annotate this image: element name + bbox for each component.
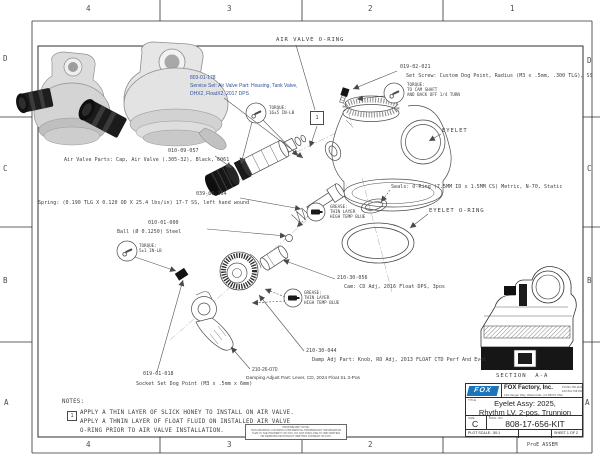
air-valve-oring-label: AIR VALVE O-RING: [276, 37, 344, 43]
section-label: SECTION A-A: [496, 373, 548, 379]
title-block-rule: [466, 429, 582, 430]
service-set-desc: Service Set: Air Valve Part: Housing, Ta…: [190, 84, 298, 90]
torque-note: 5±1 IN-LB: [139, 249, 162, 254]
zone-row-label: B: [587, 276, 592, 285]
knob-desc: Damp Adj Part: Knob, RD Adj, 2013 FLOAT …: [312, 358, 486, 364]
title-block-rule: [551, 429, 552, 438]
size-value: C: [472, 419, 478, 429]
socket-set-desc: Socket Set Dog Point (M3 x .5mm x 6mm): [136, 382, 252, 388]
notes-line: APPLY A THIN LAYER OF SLICK HONEY TO INS…: [80, 410, 294, 417]
service-set-pn: 803-01-178: [190, 76, 216, 82]
grease-tube-icon: [307, 203, 325, 221]
set-screw-desc: Set Screw: Custom Dog Point, Radius (M3 …: [406, 74, 593, 80]
proprietary-line: OR REPRODUCE WITHOUT WRITTEN CONSENT OF …: [261, 435, 332, 438]
render-small: [14, 52, 110, 145]
zone-col-label: 3: [227, 440, 232, 449]
cam-pn: 210-30-056: [337, 276, 368, 282]
title-block-rule: [518, 429, 519, 438]
torque-wrench-icon: [117, 241, 137, 261]
notes-heading: NOTES:: [62, 399, 84, 406]
eyelet-label: EYELET: [442, 128, 468, 134]
service-set-desc: DHX2, FloatX2, 2017 DPS: [190, 92, 249, 98]
company-address: 130 Hangar Way, Watsonville, CA 95076 US…: [504, 393, 563, 397]
zone-col-label: 2: [368, 4, 373, 13]
knob-part: [220, 252, 261, 290]
zone-row-label: B: [3, 276, 8, 285]
zone-row-label: A: [4, 398, 9, 407]
zone-col-label: 3: [227, 4, 232, 13]
lever-set-screw-part: [175, 268, 189, 281]
zone-row-label: A: [585, 398, 590, 407]
torque-note: AND BACK OFF 1/4 TURN: [407, 93, 460, 98]
lever-desc: Damping Adjust Part: Lever, CD, 2024 Flo…: [246, 376, 360, 382]
grease-note: HIGH TEMP BLUE: [330, 215, 365, 220]
footer-proe-label: ProE ASSEM: [527, 443, 558, 449]
set-screw-part: [338, 87, 349, 103]
proprietary-notice: PROPRIETARY NOTE: THIS DRAWING CONTAINS …: [245, 424, 347, 440]
zone-col-label: 1: [510, 4, 515, 13]
air-valve-cap-desc: Air Valve Parts: Cap, Air Valve (.305-32…: [64, 158, 229, 164]
zone-row-label: D: [587, 56, 592, 65]
notes-line: O-RING PRIOR TO AIR VALVE INSTALLATION.: [80, 428, 224, 435]
knob-pn: 210-30-044: [306, 349, 337, 355]
air-valve-cap-pn: 010-09-057: [168, 149, 199, 155]
zone-col-label: 2: [368, 440, 373, 449]
drawing-sheet: 4 3 2 1 4 3 2 D C B A D C B A ProE ASSEM…: [0, 0, 600, 463]
company-name: FOX Factory, Inc.: [504, 385, 553, 391]
ball-part: [286, 235, 293, 242]
torque-wrench-icon: [384, 83, 404, 103]
spring-desc: Spring: (0.190 TLG X 0.120 OD X 25.4 lbs…: [38, 201, 249, 207]
eyelet-oring-part: [342, 223, 414, 263]
zone-row-label: C: [3, 164, 8, 173]
socket-set-pn: 019-01-018: [143, 372, 174, 378]
notes-flag-1: 1: [67, 411, 77, 421]
zone-col-label: 4: [86, 4, 91, 13]
zone-row-label: D: [3, 54, 8, 63]
section-view: [481, 267, 576, 370]
seals-desc: Seals: O-Ring (7.5MM ID x 1.5MM CS) Metr…: [391, 185, 562, 191]
zone-col-label: 4: [86, 440, 91, 449]
torque-note: 16±5 IN-LB: [269, 111, 294, 116]
sheet-number: SHEET 1 OF 2: [554, 431, 578, 435]
grease-tube-icon: [284, 289, 302, 307]
note-flag-1: 1: [310, 111, 324, 125]
ball-pn: 010-01-000: [148, 221, 179, 227]
cam-desc: Cam: CD Adj, 2016 Float DPS, 3pos: [344, 285, 445, 291]
fox-logo: FOX: [467, 386, 499, 396]
spring-pn: 039-00-264: [196, 192, 227, 198]
plot-scale: PLOT SCALE: .50:1: [468, 431, 500, 435]
eyelet-oring-label: EYELET O-RING: [429, 208, 484, 214]
lever-pn: 210-26-070: [252, 368, 278, 374]
dwg-no-value: 808-17-656-KIT: [486, 419, 584, 429]
title-block: FOX FOX Factory, Inc. 130 Hangar Way, Wa…: [465, 383, 583, 437]
zone-row-label: C: [587, 164, 592, 173]
lever-part: [192, 292, 234, 351]
title-block-rule: [501, 384, 502, 397]
company-fax: FAX 831-768-9342: [562, 390, 584, 393]
drawing-title-line2: Rhythm LV, 2-pos, Trunnion: [466, 408, 584, 417]
title-block-rule: [466, 397, 582, 398]
ball-desc: Ball (Ø 0.1250) Steel: [117, 230, 181, 236]
set-screw-pn: 019-02-021: [400, 65, 431, 71]
grease-note: HIGH TEMP BLUE: [304, 301, 339, 306]
